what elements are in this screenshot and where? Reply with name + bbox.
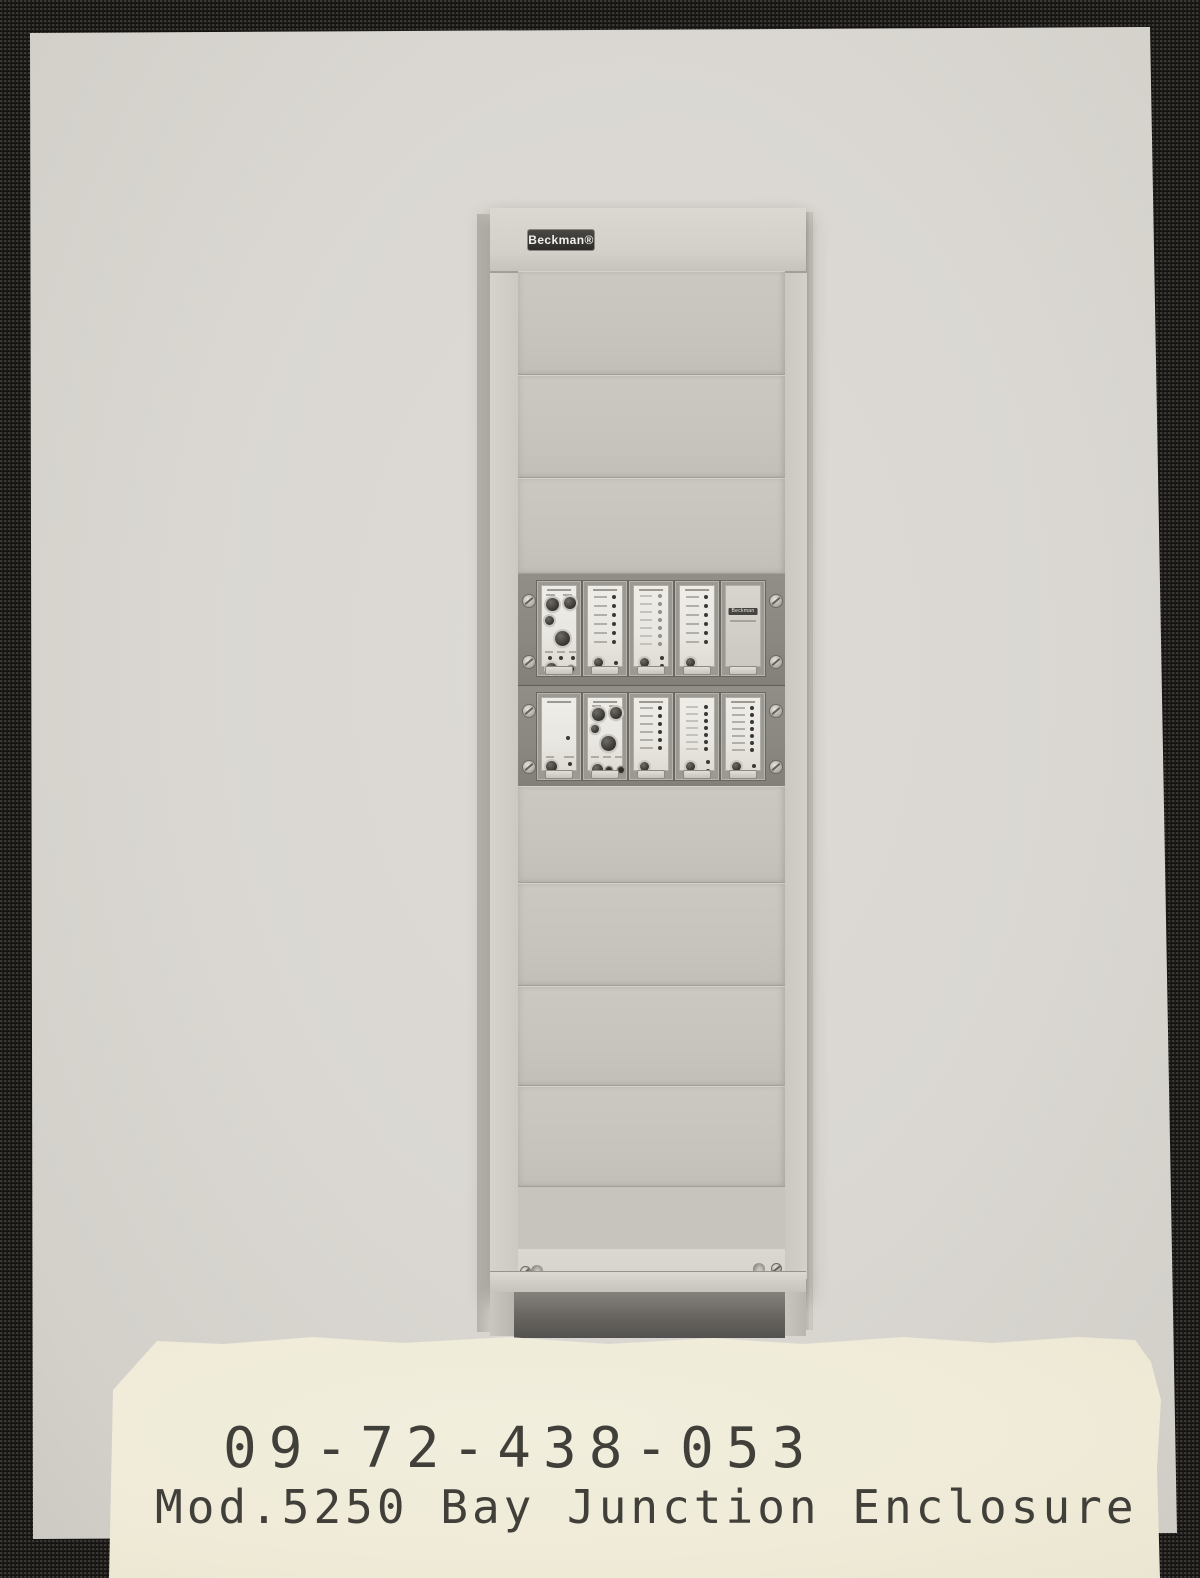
rack-left-side [477,214,490,1332]
terminal-row [728,720,758,724]
label-strip [546,594,555,596]
terminal-rows [636,706,666,750]
terminal-row [682,595,712,599]
module-title-strip [547,701,571,703]
screw-icon [769,655,783,669]
terminal-row [728,734,758,738]
label-strip [564,756,574,758]
plugin-module-knobs [582,692,628,781]
module-title-strip [639,701,663,703]
module-title-strip [639,589,663,591]
terminal-row [636,634,666,638]
module-face [633,585,669,667]
indicator-dot [559,656,563,660]
knob-icon [592,708,605,721]
terminal-rows [682,595,712,644]
terminal-row [636,714,666,718]
indicator-dot [568,762,572,766]
terminal-row [636,602,666,606]
module-face [541,585,577,667]
caption-model-name: Mod.5250 Bay Junction Enclosure [155,1480,1138,1534]
terminal-row [636,626,666,630]
indicator-dot [614,661,618,665]
terminal-row [636,618,666,622]
blank-panel [518,883,785,986]
label-strip [615,756,623,758]
beckman-mini-badge: Beckman [729,608,758,615]
label-strip [569,651,577,653]
knob-icon [591,725,599,733]
plugin-module-power [536,692,582,781]
screw-icon [769,760,783,774]
terminal-row [636,594,666,598]
terminal-row [590,595,620,599]
module-handle [591,666,619,675]
module-face [541,697,577,771]
module-face [587,585,623,667]
label-strip [545,651,553,653]
terminal-row [682,726,712,730]
screw-icon [522,760,536,774]
label-strip [591,756,599,758]
terminal-row [636,738,666,742]
knob-icon [555,631,570,646]
rack-top-cap: Beckman® [490,208,806,273]
plugin-module-terminals [628,580,674,677]
knob-icon [610,707,622,719]
module-title-strip [593,701,617,703]
terminal-row [636,730,666,734]
rack-right-side [806,212,813,1330]
label-strip [603,756,611,758]
plugin-module-terminals [720,692,766,781]
plugin-module-terminals [674,692,720,781]
terminal-row [590,631,620,635]
screw-icon [522,655,536,669]
screw-icon [769,704,783,718]
equipment-rack: Beckman® [490,208,806,1292]
terminal-rows [728,706,758,752]
knob-icon [545,616,554,625]
blank-panel [518,478,785,574]
blank-panel [518,1086,785,1187]
indicator-dot [752,764,756,768]
module-title-strip [685,589,709,591]
typed-caption-label: 09-72-438-053 Mod.5250 Bay Junction Encl… [103,1328,1165,1578]
screw-icon [769,594,783,608]
brand-badge-label: Beckman® [528,233,593,247]
module-face: Beckman [725,585,761,667]
knob-icon [564,597,576,609]
rack-left-leg [490,1292,514,1336]
screw-icon [522,704,536,718]
plugin-module-terminals [628,692,674,781]
indicator-dot [706,760,710,764]
terminal-row [636,746,666,750]
module-handle [683,770,711,779]
module-title-strip [593,589,617,591]
knob-icon [601,736,616,751]
terminal-row [682,733,712,737]
terminal-row [636,642,666,646]
terminal-row [590,613,620,617]
plugin-module-knobs [536,580,582,677]
label-strip [563,594,572,596]
label-strip [557,651,565,653]
terminal-row [682,740,712,744]
blank-panel [518,375,785,478]
module-handle [545,770,573,779]
indicator-dot [566,736,570,740]
terminal-row [590,604,620,608]
module-bay-upper: Beckman [518,574,785,686]
terminal-rows [590,595,620,644]
module-handle [637,666,665,675]
terminal-row [682,719,712,723]
plugin-module-terminals [582,580,628,677]
terminal-row [682,604,712,608]
module-handle [591,770,619,779]
terminal-row [636,706,666,710]
terminal-row [682,631,712,635]
terminal-row [590,640,620,644]
rack-under-shadow [514,1292,785,1338]
terminal-row [636,722,666,726]
label-strip [592,705,601,707]
module-face [633,697,669,771]
plugin-module-terminals [674,580,720,677]
terminal-row [682,622,712,626]
terminal-row [636,610,666,614]
terminal-row [728,741,758,745]
module-handle [729,666,757,675]
blank-panel [518,986,785,1086]
screw-icon [522,594,536,608]
blank-panel [518,786,785,883]
module-face [725,697,761,771]
terminal-rows [636,594,666,646]
rack-inner-recess: Beckman [518,271,785,1279]
beckman-logo-badge: Beckman® [527,229,595,251]
terminal-row [682,613,712,617]
indicator-dot [548,656,552,660]
module-title-strip [547,589,571,591]
module-handle [683,666,711,675]
terminal-row [728,706,758,710]
terminal-row [682,640,712,644]
module-bay-lower [518,686,785,787]
module-face [679,697,715,771]
terminal-row [682,747,712,751]
module-face [587,697,623,771]
terminal-row [682,705,712,709]
terminal-row [728,727,758,731]
module-subtitle-strip [730,620,756,622]
module-handle [729,770,757,779]
rack-right-leg [782,1292,806,1336]
rack-left-rail [490,273,519,1279]
module-face [679,585,715,667]
terminal-row [682,712,712,716]
caption-id-number: 09-72-438-053 [223,1416,817,1481]
blank-panel [518,271,785,375]
label-strip [546,756,554,758]
indicator-dot [660,656,664,660]
module-handle [545,666,573,675]
rack-bottom-rail [490,1271,806,1294]
indicator-dot [571,656,575,660]
terminal-row [728,748,758,752]
module-title-strip [731,701,755,703]
module-handle [637,770,665,779]
terminal-row [590,622,620,626]
terminal-row [728,713,758,717]
knob-icon [546,598,559,611]
terminal-rows [682,705,712,751]
blank-module-cover: Beckman [720,580,766,677]
